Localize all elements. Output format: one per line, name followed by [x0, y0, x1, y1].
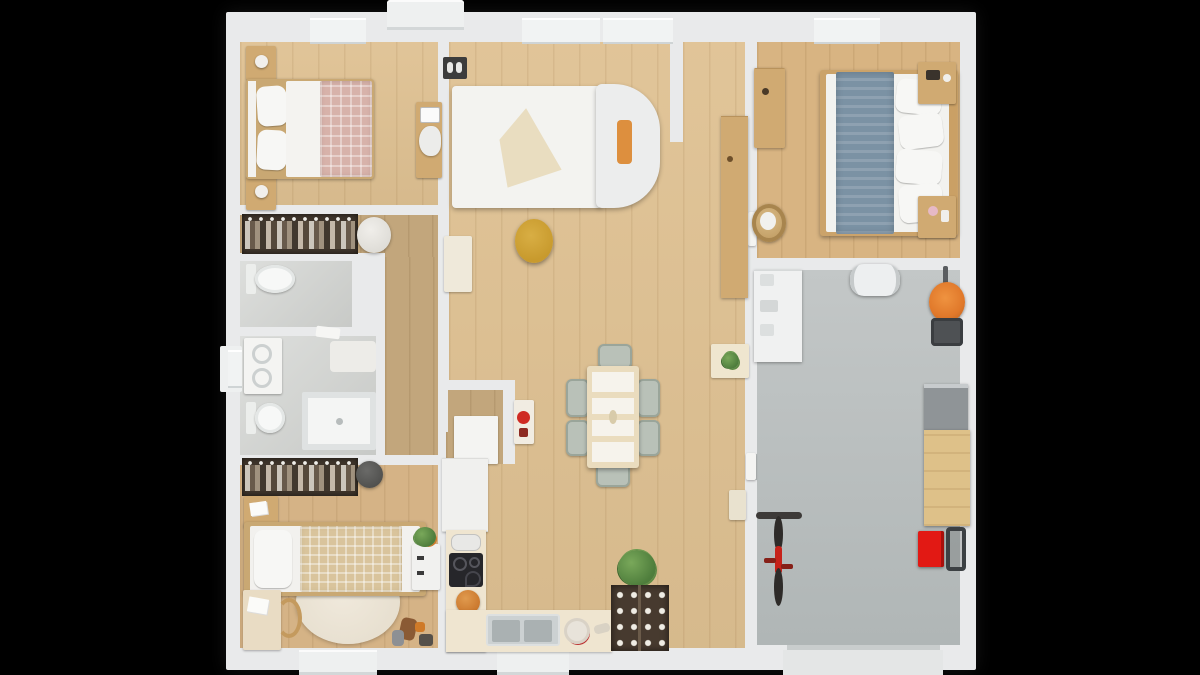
toy — [419, 634, 433, 646]
red-bicycle — [754, 506, 804, 606]
table-lamp — [255, 185, 268, 198]
nightstand — [918, 196, 956, 238]
toaster — [451, 534, 481, 551]
floorplan-render — [0, 0, 1200, 675]
bike-pedal — [764, 558, 776, 563]
burner — [465, 571, 481, 587]
nightstand — [918, 62, 956, 104]
cabinet-knob — [727, 156, 733, 162]
shower-drain — [336, 418, 343, 425]
storage-box — [760, 274, 774, 286]
wall-bath-east — [376, 336, 385, 457]
pillow — [897, 111, 945, 150]
placemat — [592, 442, 634, 462]
wall-entry-stub — [670, 42, 683, 142]
sink-basin — [492, 620, 520, 642]
wall-wc-east-door — [352, 257, 385, 329]
decor — [941, 210, 949, 222]
burner — [453, 557, 467, 571]
mower-deck — [931, 318, 963, 346]
yellow-pouf — [515, 219, 553, 263]
tool-cabinet — [924, 384, 968, 430]
pillow — [254, 530, 292, 588]
burner — [469, 557, 480, 568]
toy — [415, 622, 425, 632]
sink-basin — [524, 620, 552, 642]
window-living-b — [603, 18, 673, 44]
wall-wc-bath — [240, 327, 385, 336]
placemat — [592, 372, 634, 392]
papers — [249, 501, 268, 516]
potted-plant-small — [722, 352, 739, 369]
basin — [252, 368, 272, 388]
laundry-basket — [752, 204, 786, 242]
toy-doll — [392, 630, 404, 646]
pillow — [895, 148, 944, 186]
dining-chair — [566, 420, 589, 456]
sideboard — [444, 236, 472, 292]
dining-table — [587, 366, 639, 468]
potted-plant-large — [618, 550, 656, 586]
utility-nook-appliance — [454, 416, 498, 464]
fruit-bowl — [564, 618, 590, 644]
tall-cabinet — [721, 116, 748, 298]
pillow — [256, 129, 288, 171]
blanket-pink — [320, 81, 372, 177]
wardrobe-open — [242, 458, 358, 496]
blanket-beige — [300, 526, 402, 592]
bath-mat — [330, 341, 376, 372]
kitchen-tall-cabinets — [442, 458, 488, 532]
hand-truck — [946, 527, 966, 571]
dresser — [754, 68, 785, 148]
laundry — [760, 212, 776, 230]
entrance-porch — [387, 0, 464, 30]
garage-door-leaf — [746, 453, 756, 480]
porch-kids-room — [299, 650, 377, 675]
lawn-mower — [928, 266, 966, 348]
window-bathroom — [228, 350, 242, 388]
utility-nook-wall-left — [438, 380, 448, 432]
garage-driveway-apron — [783, 650, 943, 675]
mower-body — [929, 282, 965, 322]
pillow — [256, 85, 289, 127]
decor — [928, 206, 938, 216]
dining-chair — [637, 420, 660, 456]
pantry-shelf — [611, 585, 669, 651]
centerpiece — [609, 410, 617, 424]
flowers — [414, 527, 436, 547]
toilet — [255, 403, 285, 433]
hanging-clothes — [245, 221, 355, 249]
toilet — [255, 265, 295, 293]
papers — [247, 596, 269, 614]
roof-cargo-box — [850, 264, 900, 296]
orange-cushion — [617, 120, 632, 164]
window-bedroom3 — [814, 18, 880, 44]
blanket-blue — [836, 72, 894, 234]
window-bedroom1 — [310, 18, 366, 44]
storage-box — [760, 300, 778, 312]
shelving-unit — [754, 270, 802, 362]
double-sink — [486, 614, 560, 646]
dresser-flowers — [412, 544, 440, 590]
window-living-a — [522, 18, 600, 44]
storage-box — [760, 324, 774, 336]
bed-headboard — [248, 81, 256, 177]
desk-chair — [419, 126, 441, 156]
basin — [252, 344, 272, 364]
bench — [729, 490, 746, 520]
round-pouf — [357, 217, 391, 253]
coffee-item — [519, 428, 528, 437]
hanger-hooks — [245, 216, 355, 222]
handle — [417, 556, 424, 560]
bed-duvet — [286, 81, 322, 177]
beanbag — [356, 461, 383, 488]
dining-chair — [637, 379, 660, 417]
table-lamp — [255, 55, 268, 68]
wardrobe-open — [242, 214, 358, 254]
hanger-hooks — [245, 460, 355, 466]
laptop — [420, 107, 440, 123]
decor — [943, 74, 951, 82]
shelf-divider — [638, 585, 641, 651]
dresser-knob — [762, 88, 769, 95]
radio — [926, 70, 940, 80]
shoes — [447, 62, 453, 73]
red-kettle — [517, 411, 530, 424]
red-toolbox-stool — [918, 531, 944, 567]
shoes — [456, 62, 462, 73]
corridor-floor — [385, 257, 438, 457]
porch-kitchen — [497, 650, 569, 675]
shoe-tray — [443, 57, 467, 79]
dining-chair — [566, 379, 589, 417]
wooden-chair — [276, 598, 302, 638]
workbench — [924, 430, 970, 526]
bike-pedal — [781, 564, 793, 569]
bike-rear-wheel — [774, 568, 783, 606]
induction-cooktop — [449, 553, 483, 587]
hanging-clothes — [245, 465, 355, 491]
handle — [417, 571, 424, 575]
wc-floor — [240, 257, 355, 329]
